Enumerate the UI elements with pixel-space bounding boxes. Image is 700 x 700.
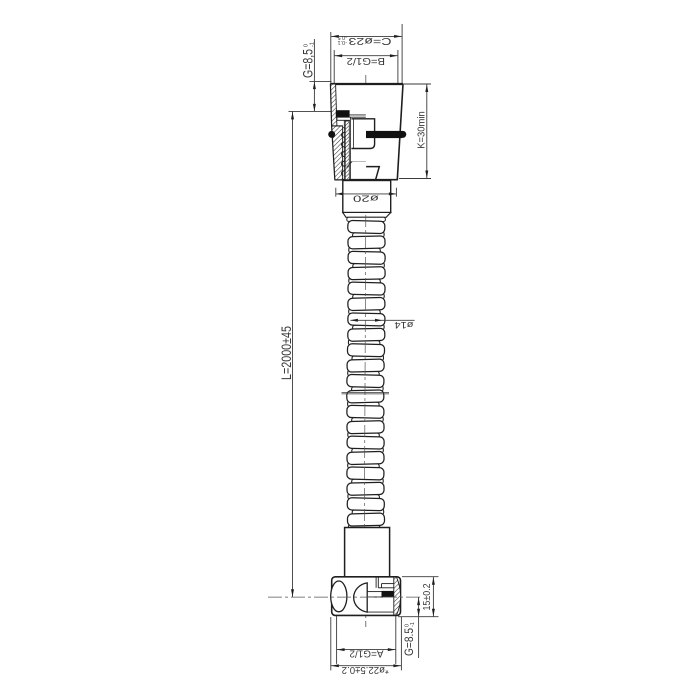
svg-text:C=ø23: C=ø23 — [348, 35, 391, 47]
svg-text:-1: -1 — [310, 42, 316, 47]
svg-text:ø20: ø20 — [353, 193, 379, 204]
svg-text:-0.5: -0.5 — [338, 34, 347, 40]
svg-text:15±0.2: 15±0.2 — [421, 583, 433, 610]
svg-text:-1: -1 — [410, 622, 416, 627]
svg-text:G=8.5: G=8.5 — [402, 628, 416, 656]
svg-text:A=G1/2: A=G1/2 — [349, 647, 383, 659]
svg-text:*ø22.5±0.2: *ø22.5±0.2 — [342, 664, 389, 676]
svg-text:L=2000±45: L=2000±45 — [279, 326, 294, 380]
svg-text:ø14: ø14 — [395, 319, 414, 330]
svg-text:G=8,5: G=8,5 — [301, 49, 316, 78]
svg-text:B=G1/2: B=G1/2 — [346, 55, 385, 67]
svg-text:K=30min: K=30min — [416, 111, 428, 149]
